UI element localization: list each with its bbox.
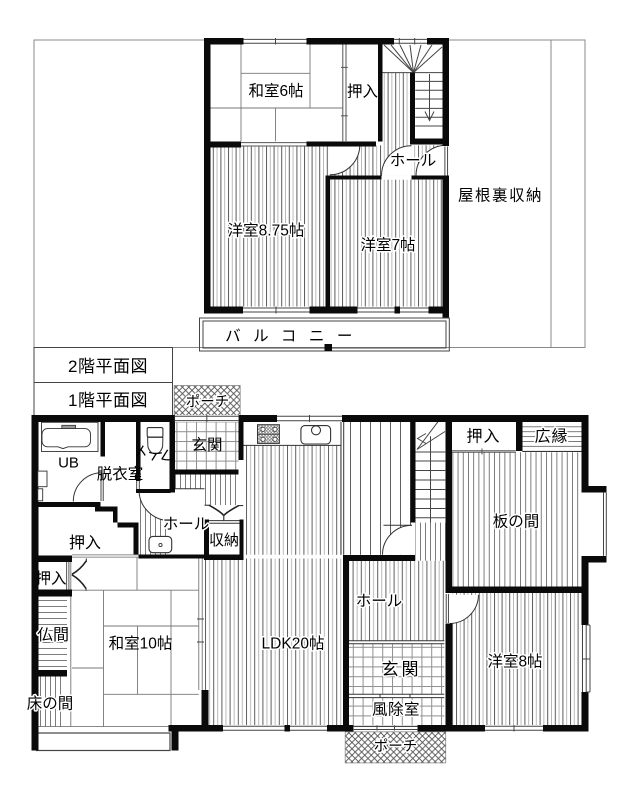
svg-text:和室6帖: 和室6帖 [248, 82, 303, 100]
svg-text:床の間: 床の間 [27, 695, 74, 713]
svg-text:押入: 押入 [35, 570, 66, 588]
svg-text:脱衣室: 脱衣室 [97, 465, 144, 483]
svg-text:ホール: ホール [163, 516, 210, 533]
svg-text:洋室8帖: 洋室8帖 [487, 653, 542, 671]
svg-text:UB: UB [58, 455, 79, 472]
svg-text:広縁: 広縁 [534, 428, 568, 446]
svg-text:ホール: ホール [356, 593, 403, 610]
svg-text:洋室7帖: 洋室7帖 [360, 236, 415, 254]
svg-text:玄関: 玄関 [382, 660, 422, 679]
svg-text:LDK20帖: LDK20帖 [262, 635, 325, 653]
svg-text:1階平面図: 1階平面図 [68, 391, 148, 410]
svg-text:仏間: 仏間 [37, 627, 69, 644]
svg-text:屋根裏収納: 屋根裏収納 [458, 186, 543, 205]
svg-text:バルコニー: バルコニー [225, 328, 365, 345]
svg-text:ポーチ: ポーチ [374, 738, 418, 755]
svg-text:洋室8.75帖: 洋室8.75帖 [228, 222, 305, 240]
svg-text:和室10帖: 和室10帖 [109, 635, 173, 653]
svg-text:押入: 押入 [466, 428, 500, 446]
svg-text:2階平面図: 2階平面図 [68, 357, 148, 376]
svg-text:風除室: 風除室 [372, 701, 420, 719]
svg-text:ホール: ホール [390, 153, 437, 170]
svg-text:玄関: 玄関 [191, 436, 222, 454]
svg-text:押入: 押入 [69, 534, 101, 552]
svg-text:収納: 収納 [209, 532, 239, 549]
svg-text:押入: 押入 [347, 83, 378, 101]
svg-text:ポーチ: ポーチ [186, 394, 230, 411]
svg-text:板の間: 板の間 [493, 513, 540, 531]
